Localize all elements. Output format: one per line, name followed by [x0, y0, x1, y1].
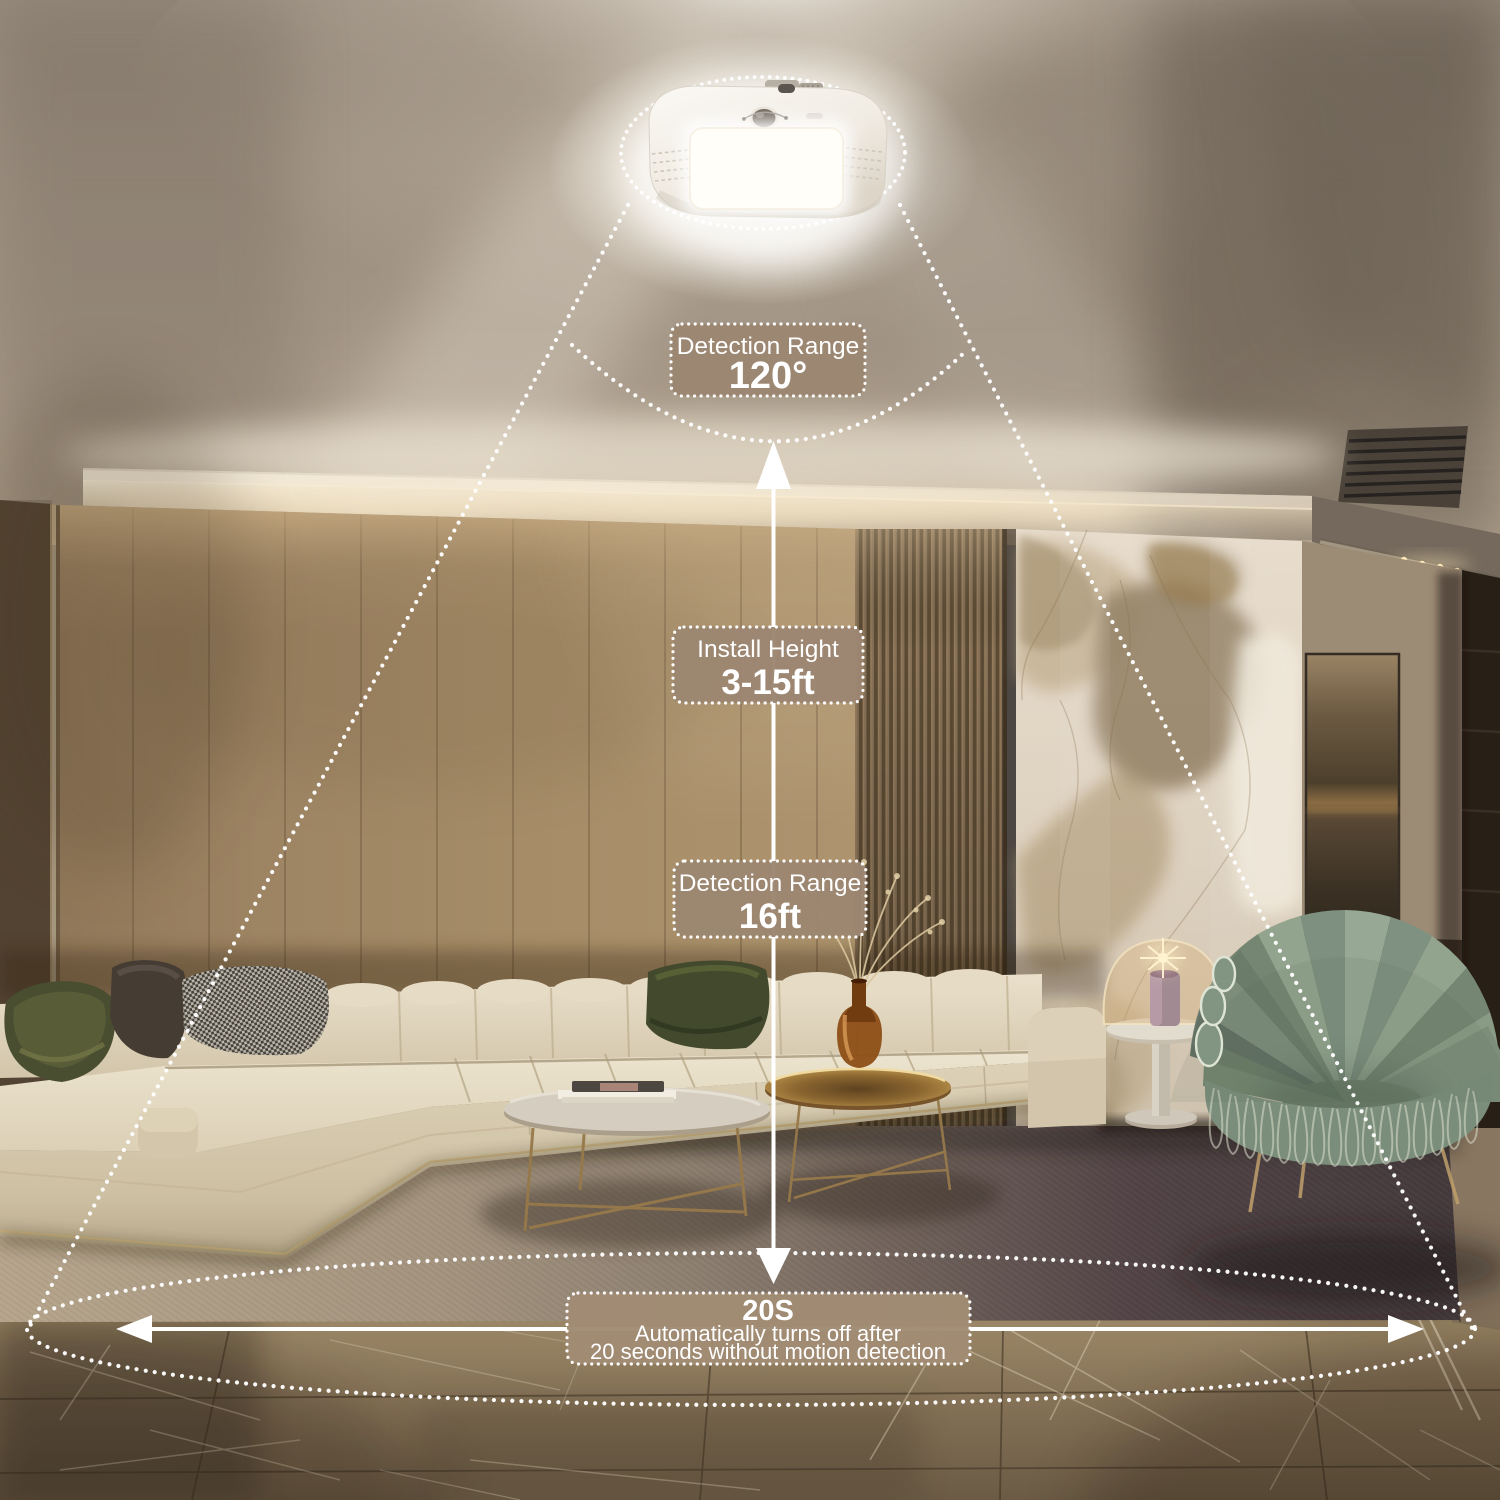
svg-text:20 seconds without motion dete: 20 seconds without motion detection: [590, 1339, 946, 1364]
svg-text:16ft: 16ft: [739, 897, 802, 936]
svg-text:3-15ft: 3-15ft: [721, 663, 815, 702]
svg-text:Detection Range: Detection Range: [679, 870, 862, 897]
svg-text:Install Height: Install Height: [697, 636, 839, 663]
svg-text:120°: 120°: [729, 355, 808, 397]
